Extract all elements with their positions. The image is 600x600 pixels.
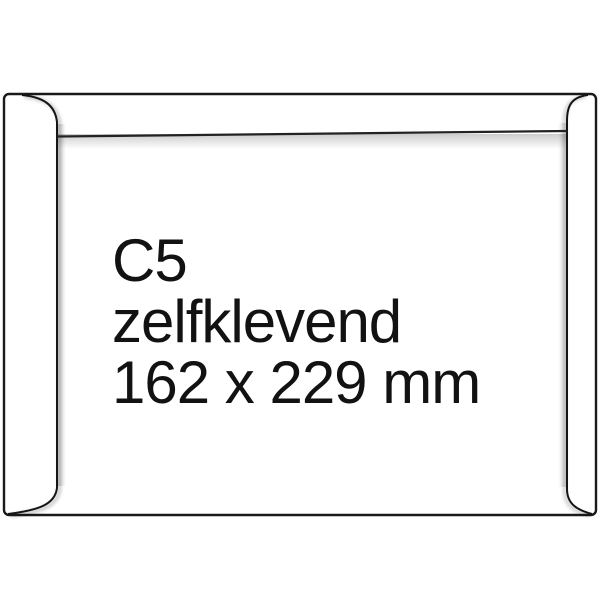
product-dimensions-text: 162 x 229 mm xyxy=(112,352,480,413)
product-label: C5 zelfklevend 162 x 229 mm xyxy=(112,230,480,413)
product-image-canvas: C5 zelfklevend 162 x 229 mm xyxy=(0,0,600,600)
left-seam-shade xyxy=(58,124,66,486)
right-seam-shade xyxy=(558,123,566,487)
product-sealing-type-text: zelfklevend xyxy=(112,291,480,352)
product-size-text: C5 xyxy=(112,230,480,291)
